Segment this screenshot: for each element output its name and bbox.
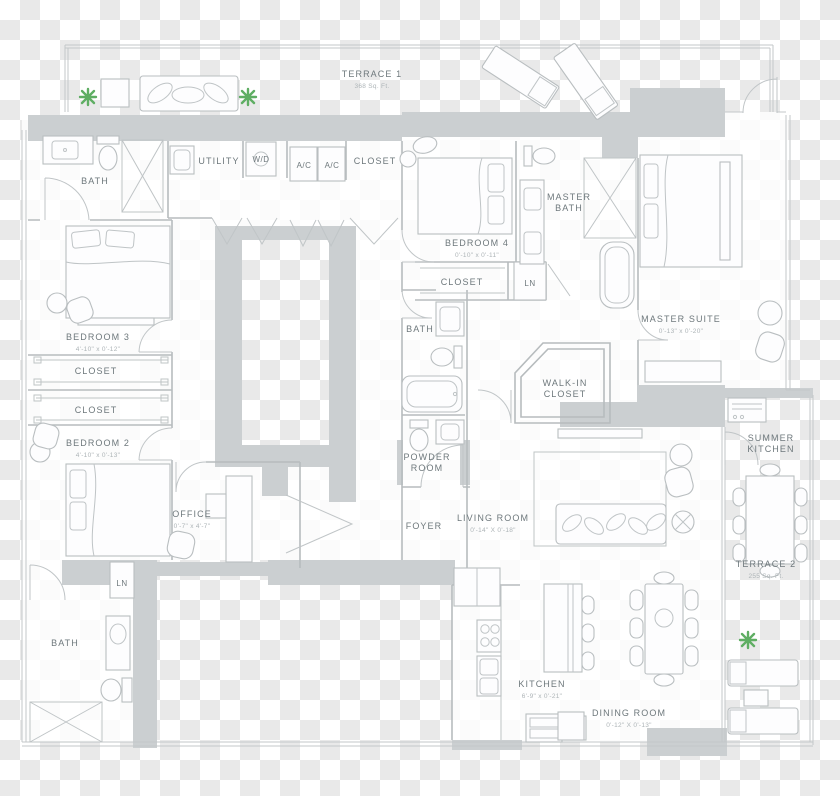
label-ac1: A/C	[297, 161, 312, 170]
plant	[240, 89, 256, 105]
label-kitchen: KITCHEN	[518, 679, 565, 689]
dims-bedroom3: 4'-10" x 0'-12"	[76, 346, 121, 353]
label-master-suite: MASTER SUITE	[641, 314, 721, 324]
label-terrace2: TERRACE 2	[736, 559, 796, 569]
dims-bedroom4: 0'-10" x 0'-11"	[455, 252, 499, 259]
summer-kitchen-furniture	[728, 398, 807, 577]
label-ln-top: LN	[524, 279, 535, 288]
label-bath-top: BATH	[81, 176, 109, 186]
transparent-checker-background: TERRACE 1 368 Sq. Ft. BATH UTILITY W/D A…	[0, 0, 840, 796]
label-ln-bottom: LN	[116, 579, 127, 588]
label-master-bath-1: MASTER	[547, 192, 591, 202]
area-terrace2: 255 Sq. Ft.	[748, 573, 783, 580]
label-foyer: FOYER	[406, 521, 443, 531]
sofa	[140, 76, 238, 111]
label-bedroom3: BEDROOM 3	[66, 332, 130, 342]
label-closet-top: CLOSET	[354, 156, 397, 166]
label-bedroom4: BEDROOM 4	[445, 238, 509, 248]
label-walkin-1: WALK-IN	[543, 378, 588, 388]
dims-dining: 0'-12" X 0'-13"	[606, 722, 652, 729]
dims-master-suite: 0'-13" x 0'-20"	[659, 328, 704, 335]
label-master-bath-2: BATH	[555, 203, 583, 213]
label-closet-b4: CLOSET	[441, 277, 484, 287]
label-utility: UTILITY	[198, 156, 239, 166]
lounge-chair	[553, 43, 618, 120]
dims-bedroom2: 4'-10" x 0'-13"	[76, 452, 121, 459]
terrace2-furniture	[728, 632, 798, 734]
floor-plan: TERRACE 1 368 Sq. Ft. BATH UTILITY W/D A…	[0, 0, 840, 796]
label-office: OFFICE	[172, 509, 212, 519]
terrace1-furniture	[80, 43, 618, 120]
label-summer-kitchen-2: KITCHEN	[747, 444, 794, 454]
label-closet1: CLOSET	[75, 366, 118, 376]
dims-living: 0'-14" X 0'-18"	[470, 527, 516, 534]
label-dining: DINING ROOM	[592, 708, 666, 718]
label-bath-mid: BATH	[406, 324, 434, 334]
label-powder-1: POWDER	[403, 452, 450, 462]
label-bedroom2: BEDROOM 2	[66, 438, 130, 448]
label-living: LIVING ROOM	[457, 513, 529, 523]
plant	[80, 89, 96, 105]
label-summer-kitchen-1: SUMMER	[748, 433, 795, 443]
label-terrace1: TERRACE 1	[342, 69, 402, 79]
dims-kitchen: 6'-9" x 0'-21"	[522, 693, 563, 700]
lounge-chair	[482, 46, 560, 109]
label-bath-bottom: BATH	[51, 638, 79, 648]
label-wd: W/D	[252, 155, 269, 164]
dims-office: 0'-7" x 4'-7"	[174, 523, 211, 530]
plant	[740, 632, 756, 648]
label-powder-2: ROOM	[411, 463, 443, 473]
label-closet2: CLOSET	[75, 405, 118, 415]
label-ac2: A/C	[325, 161, 340, 170]
area-terrace1: 368 Sq. Ft.	[354, 83, 389, 90]
label-walkin-2: CLOSET	[544, 389, 587, 399]
